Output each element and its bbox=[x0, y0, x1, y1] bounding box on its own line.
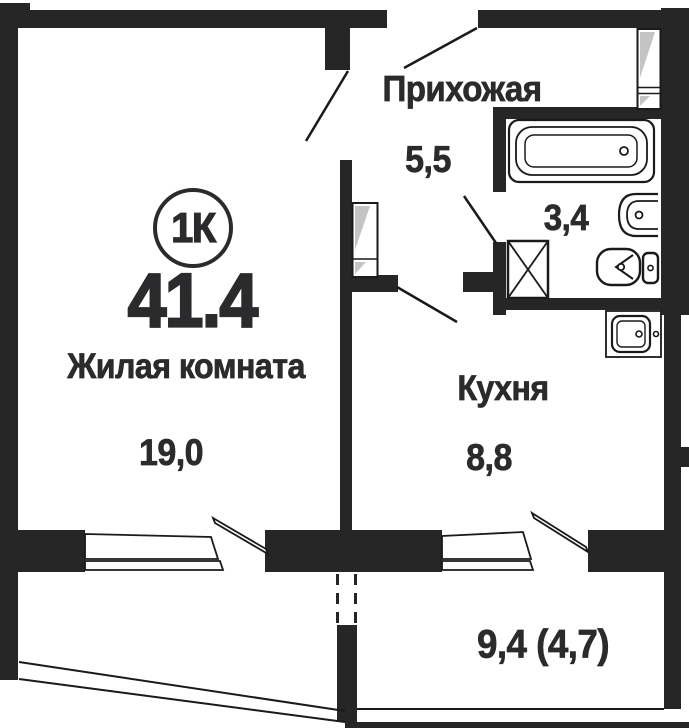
wall bbox=[681, 447, 689, 467]
window-right-icon bbox=[442, 532, 533, 570]
area-label-kitchen: 8,8 bbox=[466, 437, 512, 479]
area-label-bathroom: 3,4 bbox=[544, 197, 588, 239]
living-room-door-icon bbox=[306, 71, 348, 141]
wall bbox=[478, 10, 661, 28]
area-label-living: 19,0 bbox=[139, 432, 203, 474]
room-label-hallway: Прихожая bbox=[382, 68, 541, 110]
kitchen-door-icon bbox=[397, 287, 457, 322]
wall bbox=[664, 572, 681, 709]
toilet-icon bbox=[597, 249, 658, 285]
wall bbox=[340, 275, 398, 292]
washbasin-icon bbox=[619, 194, 658, 236]
room-label-living: Жилая комната bbox=[67, 347, 305, 387]
window-left-icon bbox=[85, 534, 223, 570]
wall bbox=[0, 3, 18, 680]
balcony-door-right-icon bbox=[532, 513, 588, 552]
balcony-divider-dashed-line bbox=[338, 574, 356, 625]
wall bbox=[493, 298, 664, 310]
wall bbox=[661, 8, 689, 315]
apartment-type-label: 1К bbox=[171, 204, 215, 252]
balcony-door-left-icon bbox=[213, 518, 268, 554]
wall bbox=[463, 272, 493, 292]
area-label-hallway: 5,5 bbox=[405, 139, 451, 181]
bathroom-door-icon bbox=[464, 196, 496, 243]
wall bbox=[664, 315, 681, 572]
wall bbox=[588, 530, 664, 572]
bathtub-icon bbox=[509, 120, 654, 182]
total-area-label: 41.4 bbox=[128, 258, 257, 345]
wall bbox=[0, 10, 387, 28]
area-label-balcony: 9,4 (4,7) bbox=[477, 623, 609, 668]
wall bbox=[493, 108, 506, 192]
wall bbox=[265, 530, 442, 572]
wall bbox=[325, 28, 350, 70]
stove-icon bbox=[606, 311, 661, 357]
room-label-kitchen: Кухня bbox=[457, 369, 548, 409]
entrance-door-icon bbox=[404, 28, 477, 68]
closet-niche-icon bbox=[353, 203, 378, 277]
window-niche-icon bbox=[638, 29, 661, 109]
floor-plan: 1К 41.4 Прихожая 5,5 3,4 Жилая комната 1… bbox=[0, 0, 689, 728]
wall bbox=[340, 160, 352, 530]
apartment-type-badge: 1К bbox=[153, 188, 233, 268]
washing-machine-icon bbox=[508, 241, 548, 298]
wall bbox=[337, 625, 357, 722]
wall bbox=[345, 722, 689, 728]
wall bbox=[18, 530, 85, 572]
